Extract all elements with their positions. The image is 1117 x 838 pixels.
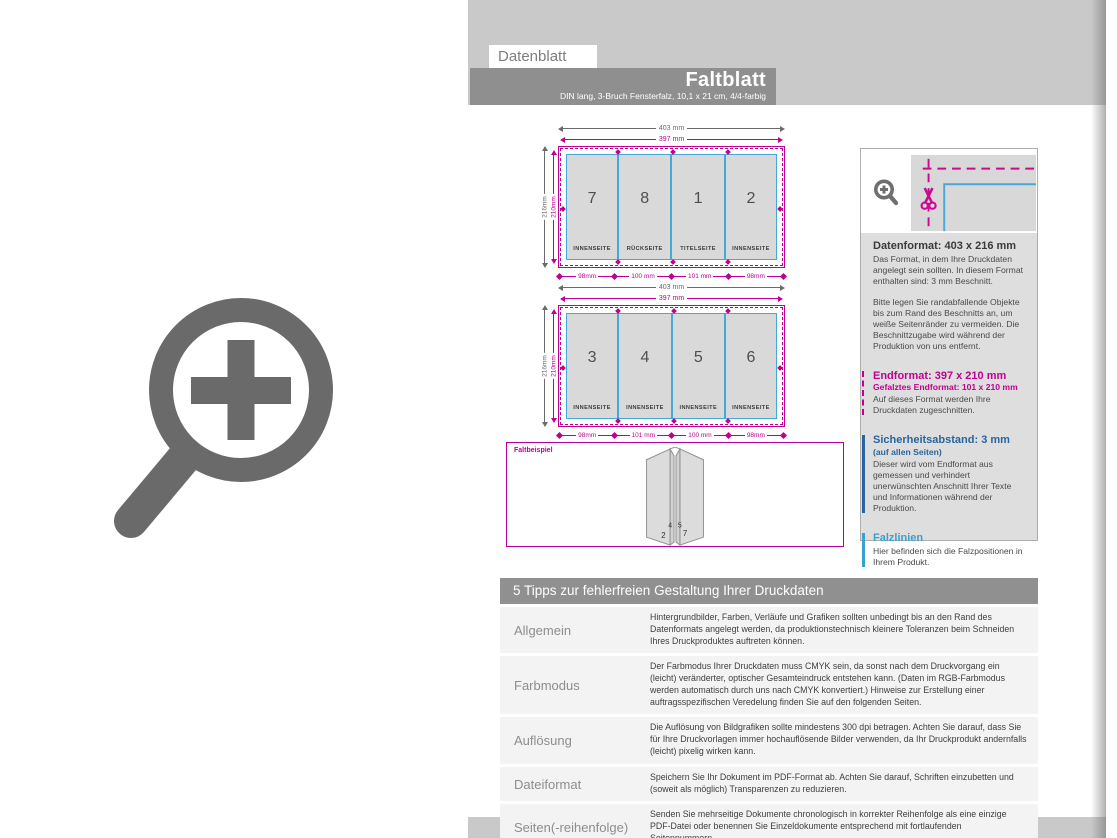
falzlinien-heading: Falzlinien — [873, 532, 1028, 545]
fold-mark-icon — [615, 259, 621, 265]
sicherheitsabstand-section: Sicherheitsabstand: 3 mm (auf allen Seit… — [873, 434, 1028, 514]
datenformat-heading: Datenformat: 403 x 216 mm — [873, 240, 1028, 253]
dimension-data-format-width: 403 mm — [558, 283, 785, 292]
fold-mark-icon — [777, 365, 783, 371]
fold-mark-icon — [671, 418, 677, 424]
datenformat-section: Datenformat: 403 x 216 mm Das Format, in… — [873, 240, 1028, 352]
panel: 1 TITELSEITE — [670, 155, 724, 259]
fold-mark-icon — [726, 259, 732, 265]
tip-label: Allgemein — [500, 607, 648, 653]
table-row: Allgemein Hintergrundbilder, Farben, Ver… — [500, 607, 1038, 653]
svg-text:5: 5 — [678, 522, 682, 529]
tip-label: Auflösung — [500, 717, 648, 763]
tip-label: Dateiformat — [500, 767, 648, 802]
tips-header: 5 Tipps zur fehlerfreien Gestaltung Ihre… — [500, 578, 1038, 604]
falzlinien-section: Falzlinien Hier befinden sich die Falzpo… — [873, 532, 1028, 568]
dimension-end-format-height: 210mm — [550, 309, 558, 423]
page-eyebrow: Datenblatt — [489, 45, 597, 68]
tips-table: 5 Tipps zur fehlerfreien Gestaltung Ihre… — [500, 578, 1038, 838]
end-format-area: 3 INNENSEITE 4 INNENSEITE 5 INNENSEITE — [566, 313, 777, 419]
dimension-end-format-width: 397 mm — [560, 294, 783, 303]
panel-width-measurements: 98mm 101 mm 100 mm 98mm — [558, 429, 785, 442]
panel-width-measurements: 98mm 100 mm 101 mm 98mm — [558, 270, 785, 283]
datasheet-sheet: Datenblatt Faltblatt DIN lang, 3-Bruch F… — [468, 0, 1106, 838]
bleed-area: 7 INNENSEITE 8 RÜCKSEITE 1 TITELSEITE — [558, 146, 785, 268]
datasheet-page: Datenblatt Faltblatt DIN lang, 3-Bruch F… — [0, 0, 1117, 838]
table-row: Auflösung Die Auflösung von Bildgrafiken… — [500, 717, 1038, 763]
tip-description: Senden Sie mehrseitige Dokumente chronol… — [648, 804, 1038, 838]
dimension-data-format-height: 216mm — [541, 305, 549, 427]
tip-description: Der Farbmodus Ihrer Druckdaten muss CMYK… — [648, 656, 1038, 714]
bleed-detail-figure — [861, 149, 1037, 233]
svg-text:4: 4 — [668, 522, 672, 529]
tip-description: Die Auflösung von Bildgrafiken sollte mi… — [648, 717, 1038, 763]
endformat-heading: Endformat: 397 x 210 mm — [873, 370, 1028, 383]
fold-mark-icon — [560, 365, 566, 371]
fold-diagram-inside: 403 mm 397 mm 216mm 210mm — [558, 283, 785, 442]
table-row: Seiten(-reihenfolge) Senden Sie mehrseit… — [500, 804, 1038, 838]
panel: 6 INNENSEITE — [724, 314, 776, 418]
dimension-data-format-width: 403 mm — [558, 124, 785, 133]
folded-leaflet-illustration: 4 5 2 7 — [645, 447, 705, 547]
page-subtitle: DIN lang, 3-Bruch Fensterfalz, 10,1 x 21… — [470, 91, 766, 102]
bleed-area: 3 INNENSEITE 4 INNENSEITE 5 INNENSEITE — [558, 305, 785, 427]
fold-example-box: Faltbeispiel 4 5 2 7 — [506, 442, 844, 547]
panel: 4 INNENSEITE — [617, 314, 671, 418]
endformat-section: Endformat: 397 x 210 mm Gefalztes Endfor… — [873, 370, 1028, 417]
panel: 7 INNENSEITE — [567, 155, 617, 259]
fold-mark-icon — [670, 259, 676, 265]
table-row: Farbmodus Der Farbmodus Ihrer Druckdaten… — [500, 656, 1038, 714]
panel: 8 RÜCKSEITE — [617, 155, 670, 259]
panel: 5 INNENSEITE — [671, 314, 724, 418]
fold-example-label: Faltbeispiel — [514, 447, 553, 454]
sicherheitsabstand-heading: Sicherheitsabstand: 3 mm — [873, 434, 1028, 447]
fold-mark-icon — [615, 418, 621, 424]
fold-mark-icon — [726, 418, 732, 424]
tip-label: Farbmodus — [500, 656, 648, 714]
panel: 3 INNENSEITE — [567, 314, 617, 418]
fold-mark-icon — [777, 206, 783, 212]
fold-mark-icon — [560, 206, 566, 212]
tip-description: Hintergrundbilder, Farben, Verläufe und … — [648, 607, 1038, 653]
svg-text:7: 7 — [683, 529, 687, 538]
dimension-end-format-width: 397 mm — [560, 135, 783, 144]
tip-label: Seiten(-reihenfolge) — [500, 804, 648, 838]
title-bar: Faltblatt DIN lang, 3-Bruch Fensterfalz,… — [470, 68, 776, 105]
table-row: Dateiformat Speichern Sie Ihr Dokument i… — [500, 767, 1038, 802]
page-title: Faltblatt — [470, 69, 766, 91]
bleed-corner-diagram — [911, 154, 1036, 232]
tip-description: Speichern Sie Ihr Dokument im PDF-Format… — [648, 767, 1038, 802]
end-format-area: 7 INNENSEITE 8 RÜCKSEITE 1 TITELSEITE — [566, 154, 777, 260]
magnifier-plus-icon — [103, 287, 363, 547]
format-info-sidebar: Datenformat: 403 x 216 mm Das Format, in… — [860, 148, 1038, 541]
dimension-data-format-height: 216mm — [541, 146, 549, 268]
svg-text:2: 2 — [661, 531, 665, 540]
fold-diagram-outside: 403 mm 397 mm 216mm 210mm — [558, 124, 785, 283]
magnifier-plus-icon — [870, 177, 902, 209]
panel: 2 INNENSEITE — [724, 155, 776, 259]
dimension-end-format-height: 210mm — [550, 150, 558, 264]
